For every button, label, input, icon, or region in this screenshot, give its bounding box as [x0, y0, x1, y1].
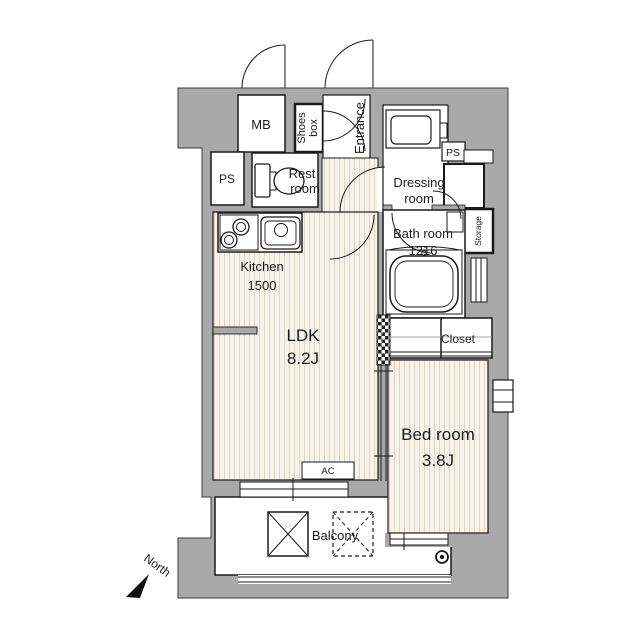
- dressing-label-2: room: [404, 191, 434, 206]
- room-bath: Bath room 1216: [383, 210, 465, 318]
- room-dressing: Dressing room: [383, 105, 448, 212]
- mb-label: MB: [251, 117, 271, 132]
- mb-door-arc: [242, 45, 285, 88]
- washing-pan-tab: [440, 123, 447, 138]
- bedroom-floor: [388, 360, 488, 533]
- storage-label: Storage: [473, 216, 483, 246]
- north-label: North: [141, 551, 173, 580]
- ac-label: AC: [321, 466, 334, 477]
- side-window-right: [471, 258, 487, 302]
- drain-icon-center: [440, 555, 444, 559]
- rest-room-label-1: Rest: [289, 166, 316, 181]
- entrance-door-arc: [325, 40, 373, 88]
- toilet-tank-icon: [255, 164, 270, 197]
- shoes-box-label-2: box: [308, 119, 320, 137]
- floor-plan: MB Shoes box Entrance PS Rest room Dress…: [0, 0, 640, 640]
- washing-machine-pan-inner: [391, 116, 431, 144]
- ps-right-label: PS: [446, 147, 460, 159]
- bathtub-icon: [390, 256, 458, 312]
- room-closet: Closet: [388, 318, 492, 358]
- rest-room-label-2: room: [290, 181, 320, 196]
- room-ps-right: PS: [442, 142, 465, 161]
- washing-machine-space: [444, 164, 484, 208]
- closet-label: Closet: [441, 332, 476, 346]
- ldk-label-1: LDK: [286, 326, 320, 345]
- kitchen-label-2: 1500: [248, 278, 277, 293]
- room-bedroom: Bed room 3.8J: [388, 360, 488, 533]
- room-shoes-box: Shoes box: [295, 104, 323, 152]
- bedroom-label-2: 3.8J: [422, 451, 454, 470]
- room-ps-left: PS: [211, 152, 244, 205]
- room-mb: MB: [238, 95, 285, 152]
- bedroom-side-window: [493, 380, 513, 412]
- bath-label-2: 1216: [409, 243, 438, 258]
- ldk-label-2: 8.2J: [287, 349, 319, 368]
- room-rest-room: Rest room: [252, 153, 320, 207]
- utility-step: [464, 150, 493, 163]
- hallway-floor: [322, 158, 378, 213]
- ps-left-label: PS: [219, 172, 235, 186]
- room-entrance: Entrance: [323, 95, 370, 160]
- room-storage: Storage: [464, 209, 493, 253]
- balcony-label: Balcony: [312, 528, 359, 543]
- compass: North: [126, 551, 173, 598]
- north-arrow-icon: [126, 574, 149, 598]
- balcony-hatch-box-solid: [268, 512, 308, 556]
- kitchen-label-1: Kitchen: [240, 259, 283, 274]
- balcony-railing-strip: [238, 575, 451, 584]
- kitchen-stub-wall: [213, 327, 257, 334]
- insulated-wall-post: [377, 315, 390, 365]
- shoes-box-label-1: Shoes: [296, 112, 308, 144]
- dressing-label-1: Dressing: [393, 175, 444, 190]
- bedroom-label-1: Bed room: [401, 425, 475, 444]
